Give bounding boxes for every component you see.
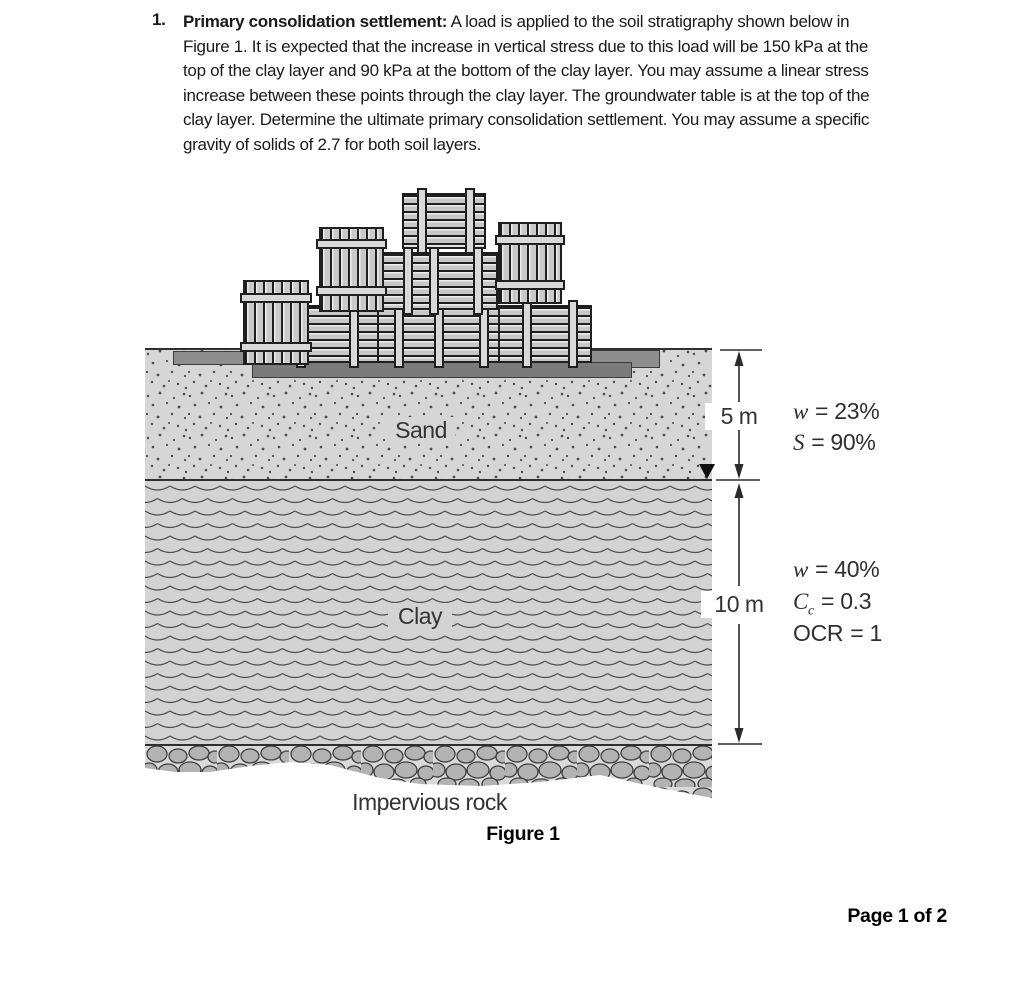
dim-arrow-down — [735, 464, 744, 479]
property-symbol: OCR — [793, 620, 843, 646]
crate-strap — [495, 235, 565, 245]
clay-label-text: Clay — [388, 603, 452, 629]
problem-line: Primary consolidation settlement: A load… — [183, 10, 869, 35]
problem-title: Primary consolidation settlement: — [183, 12, 447, 31]
crate-strap — [240, 342, 312, 352]
property-symbol: w — [793, 399, 808, 424]
property-value: = 0.3 — [821, 588, 871, 614]
property-value: = 23% — [815, 398, 879, 424]
lumber-bundle — [402, 193, 486, 249]
lumber-crate — [319, 227, 384, 312]
bundle-post — [465, 188, 475, 254]
rock-label: Impervious rock — [327, 789, 532, 816]
crate-strap — [316, 286, 387, 296]
bundle-post — [473, 247, 483, 315]
crate-strap — [316, 239, 387, 249]
problem-line: clay layer. Determine the ultimate prima… — [183, 108, 869, 133]
figure-caption: Figure 1 — [448, 823, 598, 846]
lumber-bundle — [498, 305, 592, 363]
dim-arrow-down — [735, 728, 744, 743]
sand-clay-boundary-line — [145, 479, 712, 481]
property-symbol: C — [793, 589, 808, 614]
problem-line-text: A load is applied to the soil stratigrap… — [451, 12, 850, 31]
property-value: = 40% — [815, 556, 879, 582]
problem-number: 1. — [152, 10, 166, 30]
problem-line: top of the clay layer and 90 kPa at the … — [183, 59, 869, 84]
document-page: 1. Primary consolidation settlement: A l… — [0, 0, 1024, 994]
property-symbol: S — [793, 430, 804, 455]
lumber-crate — [243, 280, 309, 365]
dim-arrow-up — [735, 483, 744, 498]
clay-label: Clay — [365, 603, 475, 630]
bundle-post — [522, 300, 532, 368]
problem-line: Figure 1. It is expected that the increa… — [183, 35, 869, 60]
property-row: w= 40% — [793, 556, 882, 588]
property-row: S= 90% — [793, 429, 879, 460]
property-value: = 1 — [850, 620, 882, 646]
dim-arrow-up — [735, 351, 744, 366]
bundle-post — [403, 247, 413, 315]
sand-thickness-label: 5 m — [705, 403, 773, 430]
lumber-crate — [498, 222, 562, 304]
problem-line: gravity of solids of 2.7 for both soil l… — [183, 133, 869, 158]
bundle-post — [429, 247, 439, 315]
sand-label: Sand — [366, 417, 476, 444]
clay-rock-boundary-line — [145, 744, 712, 746]
sand-properties: w= 23% S= 90% — [793, 398, 879, 460]
clay-properties: w= 40% Cc= 0.3 OCR= 1 — [793, 556, 882, 652]
water-table-icon — [699, 464, 715, 479]
problem-line: increase between these points through th… — [183, 84, 869, 109]
bundle-post — [417, 188, 427, 254]
sand-label-text: Sand — [387, 417, 455, 443]
property-row: w= 23% — [793, 398, 879, 429]
property-row: Cc= 0.3 — [793, 588, 882, 620]
page-footer: Page 1 of 2 — [847, 905, 947, 928]
clay-thickness-label: 10 m — [701, 591, 777, 618]
crate-strap — [240, 293, 312, 303]
property-row: OCR= 1 — [793, 620, 882, 652]
property-subscript: c — [808, 604, 814, 619]
problem-statement: Primary consolidation settlement: A load… — [183, 10, 869, 158]
bundle-post — [568, 300, 578, 368]
property-value: = 90% — [811, 429, 875, 455]
property-symbol: w — [793, 557, 808, 582]
lumber-bundle — [380, 252, 498, 310]
crate-strap — [495, 280, 565, 290]
